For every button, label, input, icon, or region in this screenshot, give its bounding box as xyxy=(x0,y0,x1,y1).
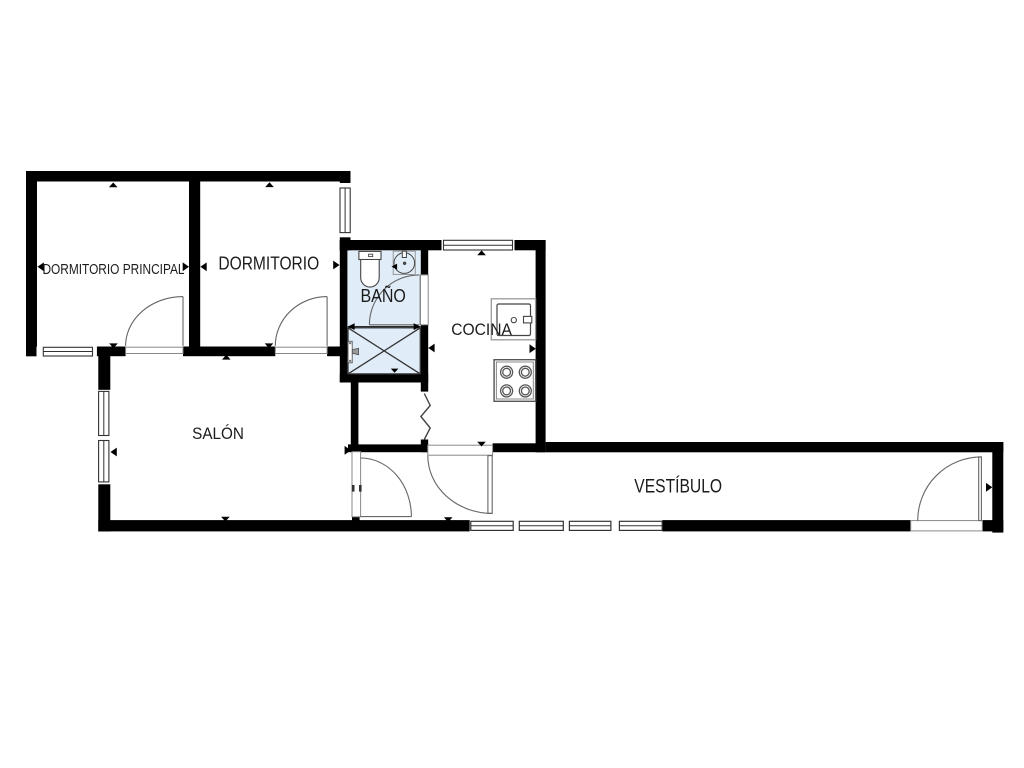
svg-text:VESTÍBULO: VESTÍBULO xyxy=(634,477,722,498)
svg-text:DORMITORIO PRINCIPAL: DORMITORIO PRINCIPAL xyxy=(42,262,184,278)
svg-text:DORMITORIO: DORMITORIO xyxy=(218,253,319,274)
svg-text:COCINA: COCINA xyxy=(451,320,513,339)
svg-text:SALÓN: SALÓN xyxy=(192,424,244,443)
svg-text:BAÑO: BAÑO xyxy=(361,285,406,306)
